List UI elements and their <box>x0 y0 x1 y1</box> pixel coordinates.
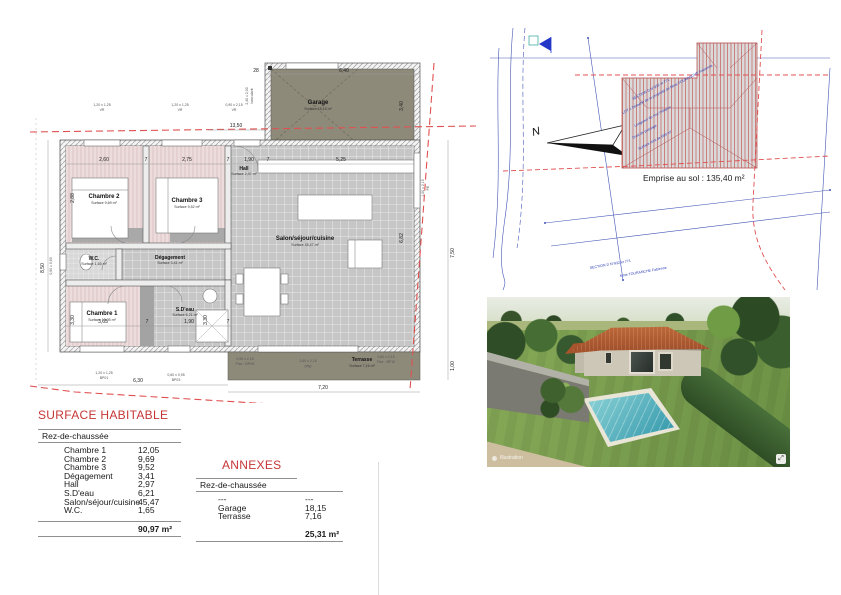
surface-table: Rez-de-chaussée Chambre 112,05 Chambre 2… <box>38 429 181 537</box>
room-surface-salon: Surface 45,47 m² <box>291 243 319 247</box>
opening-label: BP03 <box>172 378 181 382</box>
room-label-garage: Garage <box>308 100 329 106</box>
surface-total: 90,97 m² <box>138 524 172 534</box>
flag-marker <box>529 36 551 53</box>
dimension-label: 2,88 <box>70 193 76 203</box>
small-window <box>605 352 612 364</box>
annexes-total-row: 25,31 m² <box>196 527 343 542</box>
dimension-label: 1,90 <box>244 157 254 163</box>
dimension-label: 7 <box>227 319 230 325</box>
table-row: Dégagement3,41 <box>38 472 181 481</box>
render-3d-view: Illustration ⤢ <box>487 297 790 467</box>
dimension-label: 8,50 <box>40 263 46 273</box>
garden-plants <box>535 377 595 422</box>
garage-area <box>265 63 420 150</box>
dimension-label: 2,75 <box>182 157 192 163</box>
annexes-table-title: ANNEXES <box>196 458 297 479</box>
room-label-chambre-3: Chambre 3 <box>171 198 203 204</box>
dimension-label: 1,00 <box>450 361 456 371</box>
opening-label: (vtg) <box>305 364 312 368</box>
surface-total-row: 90,97 m² <box>38 521 181 537</box>
dimension-label: 1,90 <box>184 319 194 325</box>
table-level-header: Rez-de-chaussée <box>196 479 343 492</box>
dimension-label: 7 <box>227 157 230 163</box>
watermark-icon <box>492 456 497 461</box>
surface-habitable-block: SURFACE HABITABLE Rez-de-chaussée Chambr… <box>38 408 181 537</box>
table-row: Chambre 112,05 <box>38 446 181 455</box>
dimension-label: 7,50 <box>450 248 456 258</box>
north-arrow-icon: N <box>531 125 628 156</box>
owner-note: Mme TOURANCHE Fabienne <box>619 266 667 278</box>
opening-label: VR <box>232 108 237 112</box>
emprise-label: Emprise au sol : 135,40 m² <box>643 173 745 183</box>
dimension-label: 7,20 <box>318 385 328 391</box>
north-label: N <box>531 125 542 139</box>
room-label-terrasse: Terrasse <box>352 357 373 363</box>
opening-label: 0,90 x 2,15 <box>236 357 253 361</box>
opening-label: 0,60 x 0,95 <box>167 373 184 377</box>
dimension-label: 7 <box>145 157 148 163</box>
dimension-label: 28 <box>253 68 259 74</box>
opening-label: VR <box>100 108 105 112</box>
dimension-label: 7 <box>146 319 149 325</box>
opening-label: VR <box>178 108 183 112</box>
floor-plan: 2,60 7 2,75 7 1,90 7 5,25 8,50 2,88 3,30… <box>28 28 478 403</box>
window <box>658 352 673 371</box>
dimension-label: 13,50 <box>230 123 243 129</box>
opening-label: 3,60 x 2,15 <box>299 359 316 363</box>
room-label-salon: Salon/séjour/cuisine <box>276 236 335 242</box>
room-surface-hall: Surface 2,97 m² <box>231 172 257 176</box>
table-level-header: Rez-de-chaussée <box>38 430 181 443</box>
table-row: Terrasse7,16 <box>196 512 343 521</box>
dimension-label: 6,40 <box>339 68 349 74</box>
table-row: Hall2,97 <box>38 480 181 489</box>
room-surface-wc: Surface 1,65 m² <box>81 262 107 266</box>
opening-label: BP01 <box>100 376 109 380</box>
dimension-label: 6,30 <box>133 378 143 384</box>
room-surface-sdeau: Surface 6,21 m² <box>172 313 198 317</box>
dimension-label: 5,25 <box>336 157 346 163</box>
placard-chambre-1 <box>140 286 154 346</box>
section-note: SECTION D N°932 et 771 <box>589 259 631 270</box>
dimension-label: 7 <box>267 157 270 163</box>
room-surface-garage: Surface 18,15 m² <box>304 107 332 111</box>
surface-table-title: SURFACE HABITABLE <box>38 408 181 422</box>
opening-label: 0,60 x 0,60 <box>49 257 53 274</box>
opening-label: basculant <box>250 88 254 103</box>
room-surface-chambre-2: Surface 9,69 m² <box>91 201 117 205</box>
table-row: Salon/séjour/cuisine45,47 <box>38 498 181 507</box>
site-plan: N SECTION D N°932 et 771 LOT 1 Détaché d… <box>485 28 835 290</box>
annexes-table: Rez-de-chaussée ------ Garage18,15 Terra… <box>196 479 343 542</box>
room-label-chambre-2: Chambre 2 <box>88 194 120 200</box>
room-surface-degagement: Surface 3,41 m² <box>157 261 183 265</box>
dimension-label: 6,82 <box>399 233 405 243</box>
opening-label: 1,20 x 1,25 <box>171 103 188 107</box>
opening-label: Fixe - BP10 <box>377 360 395 364</box>
room-surface-terrasse: Surface 7,16 m² <box>349 364 375 368</box>
table-row: Chambre 29,69 <box>38 455 181 464</box>
annexes-block: ANNEXES Rez-de-chaussée ------ Garage18,… <box>196 458 343 542</box>
table-row: W.C.1,65 <box>38 506 181 515</box>
watermark: Illustration <box>492 455 523 461</box>
page-fold-mark <box>378 462 379 595</box>
opening-label: 1,20 x 1,25 <box>95 371 112 375</box>
bay-window <box>629 350 655 374</box>
opening-label: 1,00 x 2,15 <box>421 179 425 196</box>
opening-label: PE <box>426 185 430 190</box>
fullscreen-icon[interactable]: ⤢ <box>776 454 786 464</box>
opening-label: 0,90 x 2,15 <box>225 103 242 107</box>
dimension-label: 2,60 <box>99 157 109 163</box>
dimension-label: 3,30 <box>203 315 209 325</box>
room-surface-chambre-3: Surface 9,52 m² <box>174 205 200 209</box>
watermark-text: Illustration <box>500 455 523 461</box>
room-surface-chambre-1: Surface 12,05 m² <box>88 318 116 322</box>
room-label-chambre-1: Chambre 1 <box>86 311 118 317</box>
annexes-total: 25,31 m² <box>305 529 339 539</box>
opening-label: 2,40 x 2,00 <box>245 87 249 104</box>
dimension-label: 3,30 <box>70 315 76 325</box>
dimension-label: 3,40 <box>399 101 405 111</box>
opening-label: 1,20 x 1,25 <box>93 103 110 107</box>
opening-label: Fixe - BPV8 <box>236 362 255 366</box>
opening-label: 0,60 x 2,15 <box>377 355 394 359</box>
